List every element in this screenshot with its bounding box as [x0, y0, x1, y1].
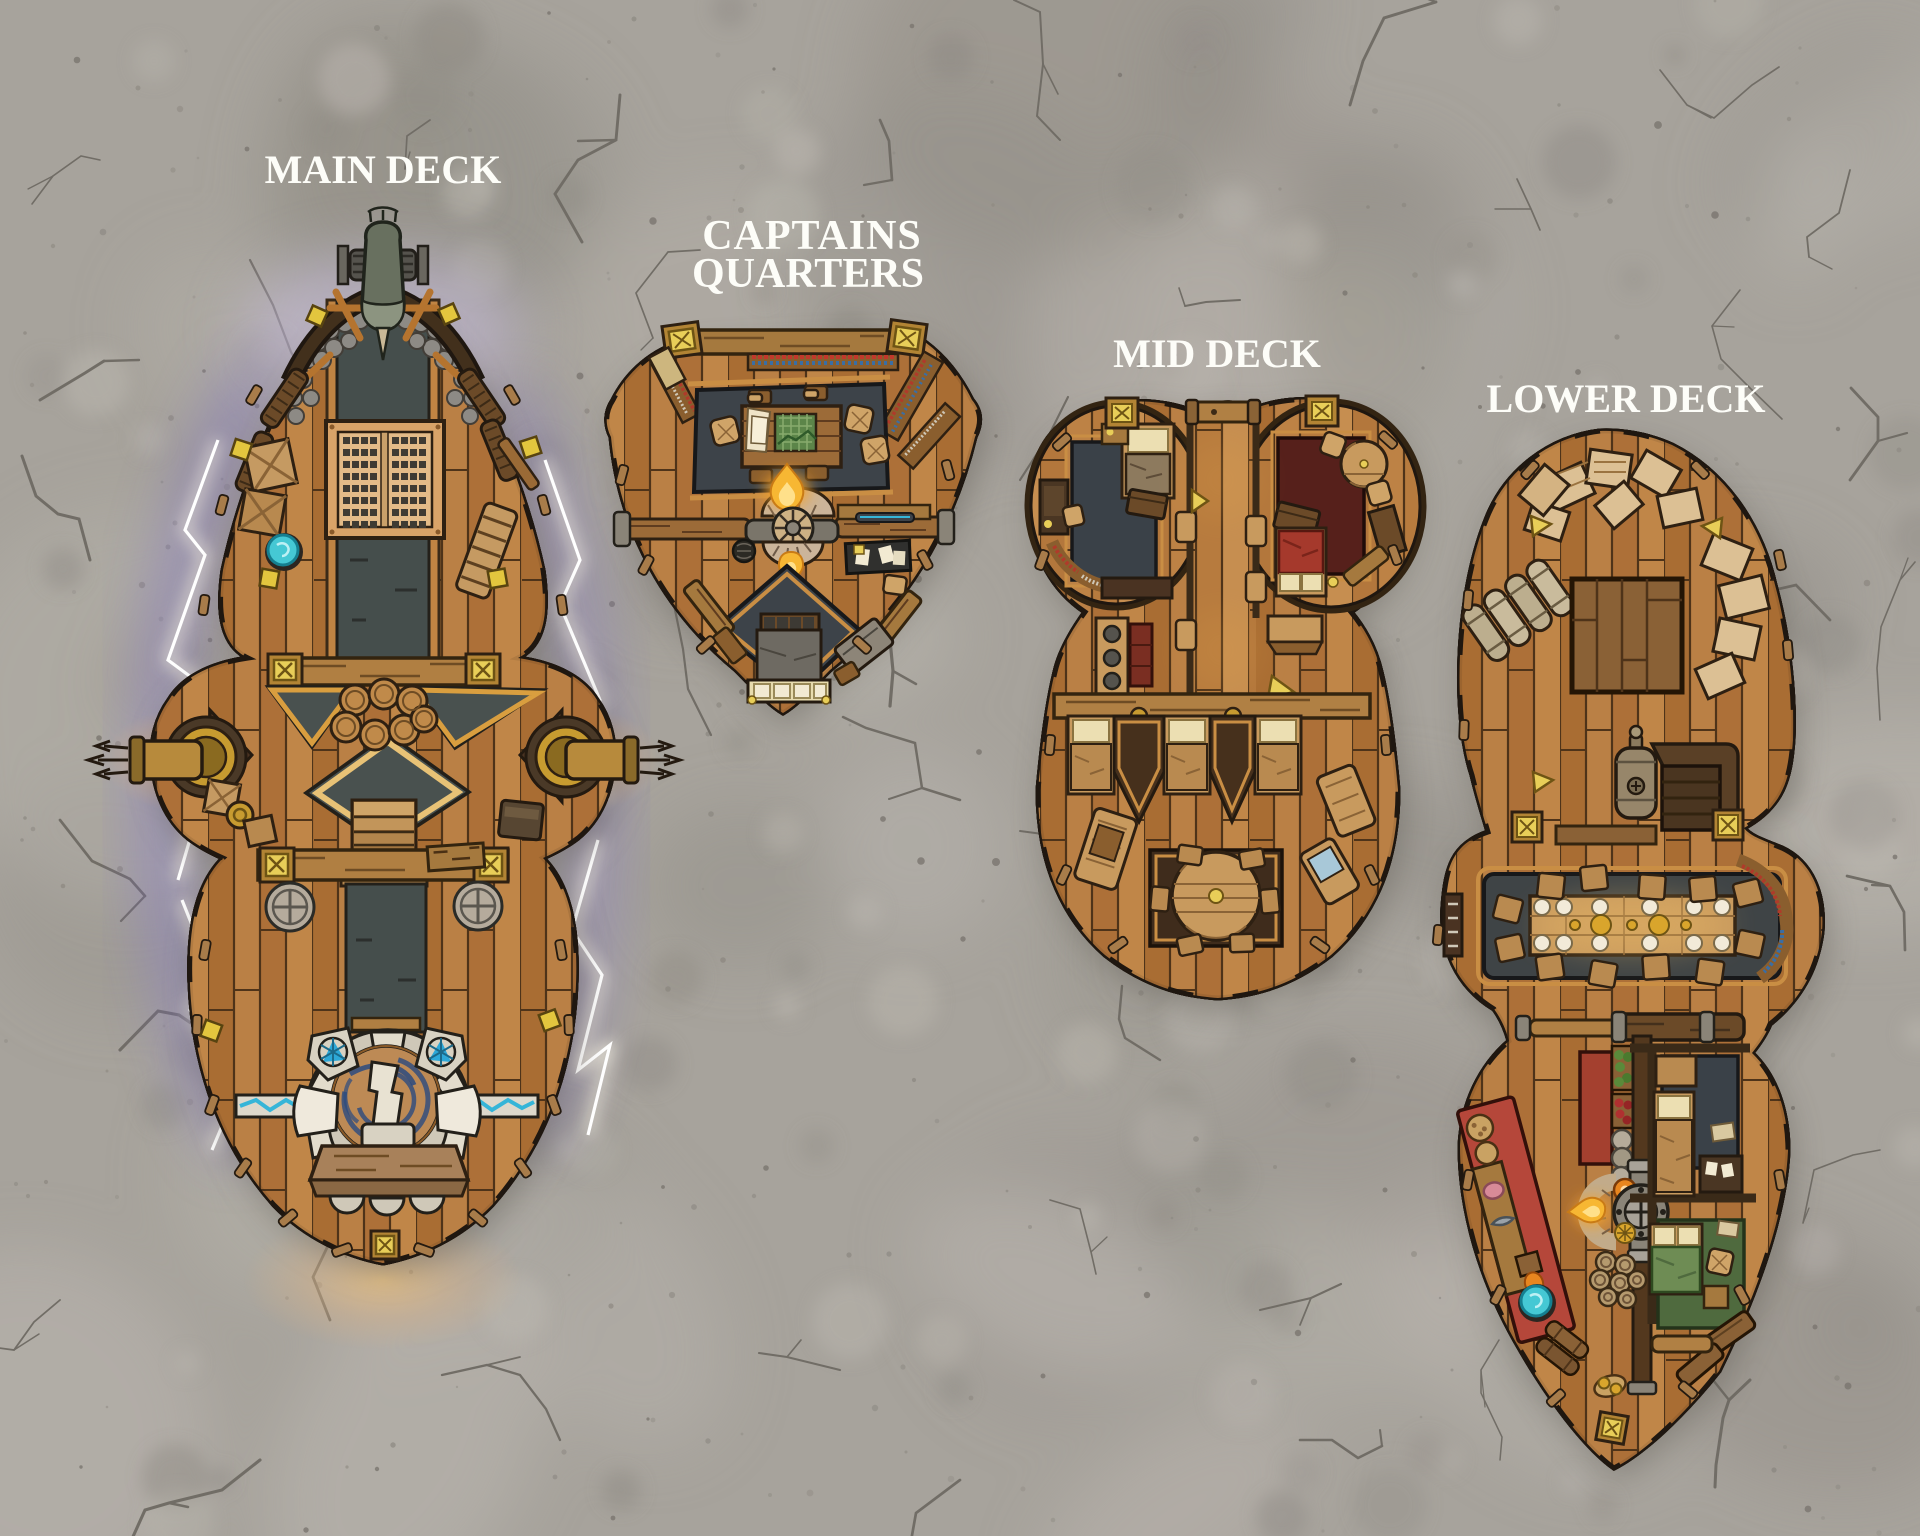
svg-text:QUARTERS: QUARTERS: [692, 251, 924, 297]
svg-text:LOWER DECK: LOWER DECK: [1487, 376, 1766, 421]
svg-text:MAIN DECK: MAIN DECK: [265, 147, 502, 192]
svg-text:MID DECK: MID DECK: [1113, 331, 1321, 376]
